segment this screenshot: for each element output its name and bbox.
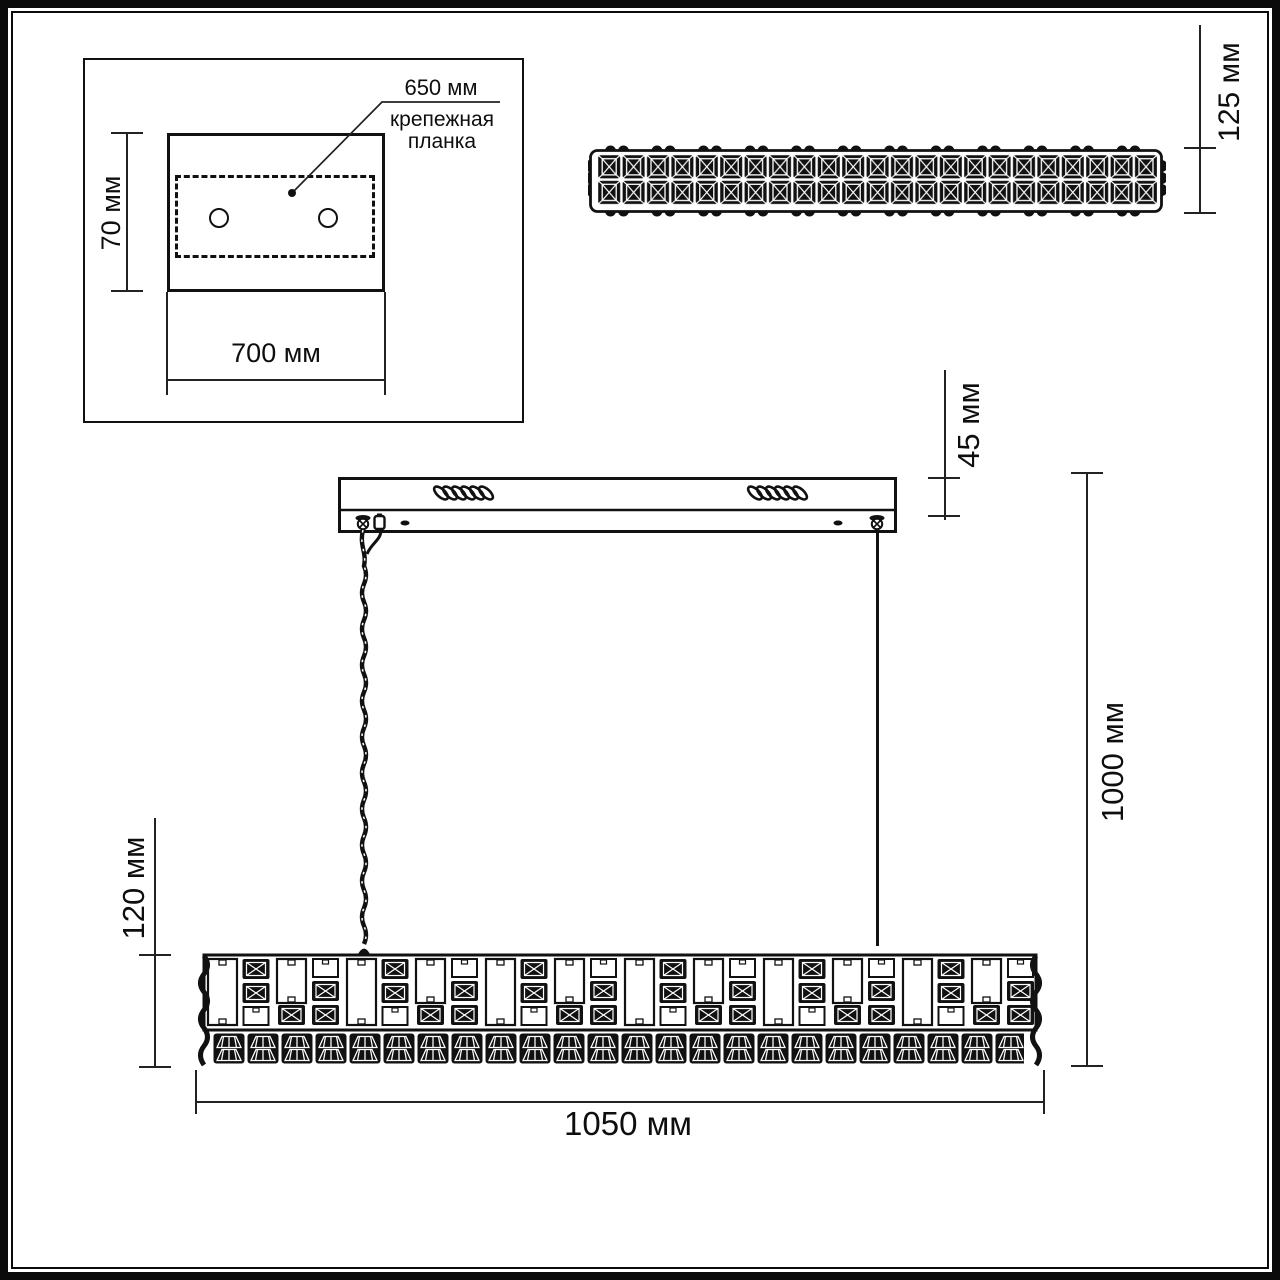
callout-text-line2: планка: [362, 130, 522, 154]
dim-1050-ext-right: [1043, 1070, 1045, 1114]
fixture-crystal-band-lower: [212, 1032, 1024, 1065]
fixture-wavy-edge-right: [1033, 956, 1040, 1065]
mount-slot-left: [401, 521, 410, 526]
dim-1000-label: 1000 мм: [1095, 677, 1131, 847]
fixture-crystal-row-upper: [204, 955, 1036, 1030]
dim-125-tick-bottom: [1184, 212, 1216, 214]
mount-slot-right: [834, 521, 843, 526]
dim-45-label: 45 мм: [951, 350, 987, 500]
cable-entry-notch: [358, 949, 370, 954]
dim-1050-label: 1050 мм: [470, 1104, 786, 1144]
dim-125-label: 125 мм: [1212, 12, 1248, 172]
fixture-top-view: [588, 145, 1166, 217]
dim-70-tick-top: [111, 132, 143, 134]
dim-1000-tick-top: [1071, 472, 1103, 474]
dim-1000-tick-bottom: [1071, 1065, 1103, 1067]
dim-120-tick-bottom: [139, 1066, 171, 1068]
suspension-rod: [876, 531, 879, 946]
callout-value-label: 650 мм: [371, 75, 511, 101]
dim-45-line: [944, 370, 946, 520]
dim-120-line: [154, 818, 156, 1067]
top-view-crystal-grid: [597, 154, 1157, 205]
ceiling-bar-details: [338, 477, 897, 533]
power-cable: [340, 526, 390, 954]
dim-125-line: [1199, 25, 1201, 213]
fixture-front-view: [196, 944, 1046, 1074]
dim-1050-line: [195, 1101, 1044, 1103]
callout-text-line1: крепежная: [362, 108, 522, 132]
fixture-wavy-edge-left: [201, 956, 208, 1065]
spring-coil-left: [432, 484, 495, 501]
technical-drawing: 650 мм крепежная планка 70 мм 700 мм: [0, 0, 1280, 1280]
dim-70-tick-bottom: [111, 290, 143, 292]
mounting-detail-inset: 650 мм крепежная планка 70 мм 700 мм: [83, 58, 524, 423]
dim-120-label: 120 мм: [116, 803, 152, 973]
suspension-screw-right: [870, 515, 885, 529]
dim-1000-line: [1086, 473, 1088, 1066]
dim-45-tick-bottom: [928, 515, 960, 517]
dim-1050-ext-left: [195, 1070, 197, 1114]
dim-70-label: 70 мм: [96, 153, 126, 273]
dim-700-line: [167, 379, 386, 381]
dim-700-label: 700 мм: [176, 337, 376, 369]
spring-coil-right: [746, 484, 809, 501]
